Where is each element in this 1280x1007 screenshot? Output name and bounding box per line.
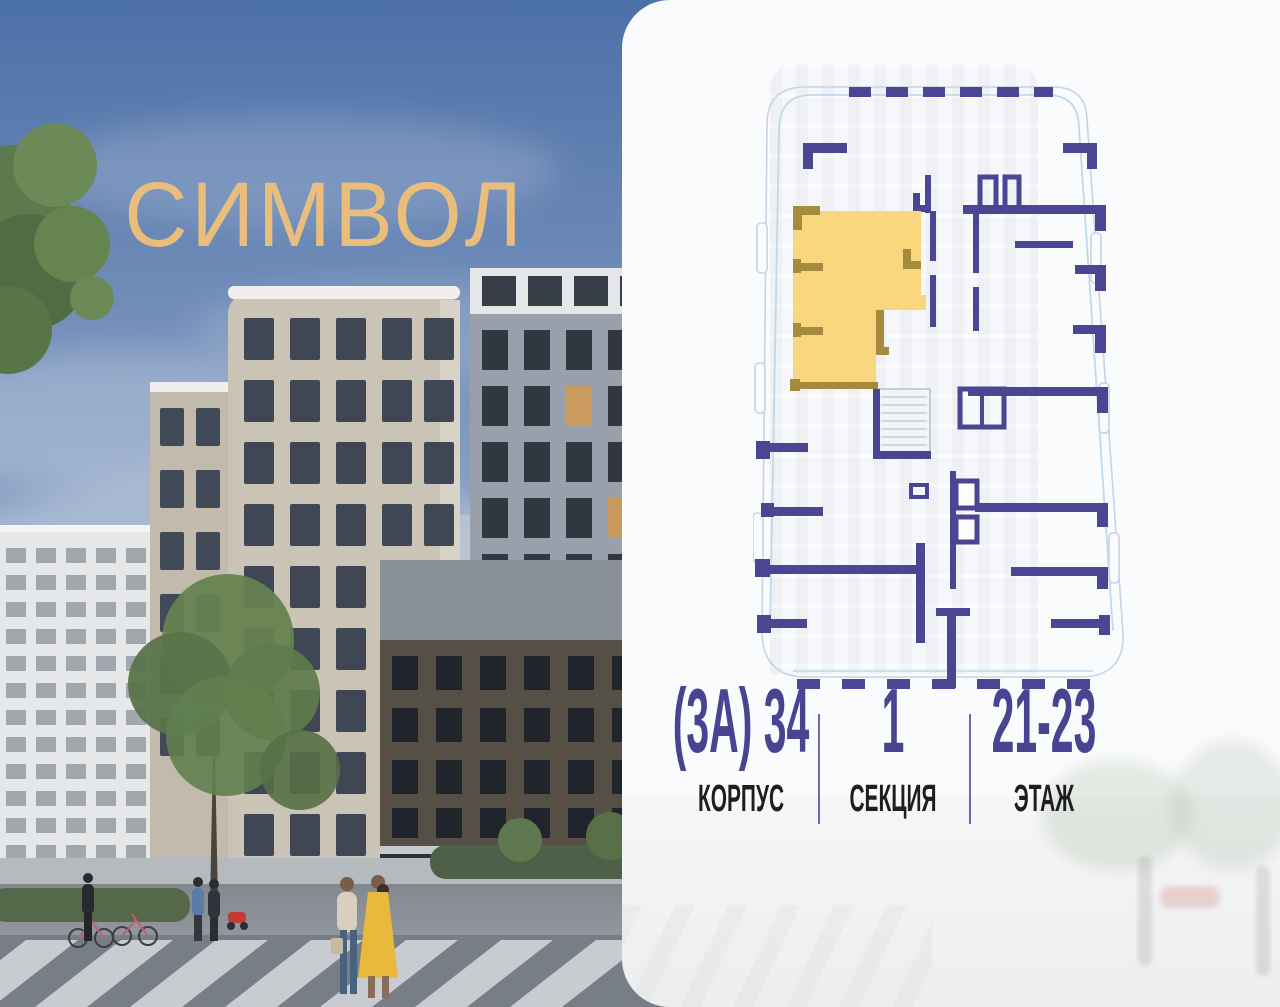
floor-plan — [753, 83, 1133, 703]
apartment-highlight[interactable] — [793, 211, 926, 388]
selected-apartment[interactable] — [790, 206, 926, 391]
brand-logo: СИМВОЛ — [16, 163, 634, 268]
faded-person — [1138, 856, 1152, 966]
faded-person — [1256, 866, 1270, 976]
apartment-card-panel: (3А) 34 КОРПУС 1 СЕКЦИЯ 21-23 ЭТАЖ — [622, 0, 1280, 1007]
real-estate-card: { "brand": { "logo_text": "СИМВОЛ", "log… — [0, 0, 1280, 1007]
staircase — [878, 389, 930, 453]
faded-red-car — [1160, 886, 1220, 908]
faded-crosswalk — [622, 905, 932, 1007]
street-photo — [0, 0, 700, 1007]
faded-tree — [1042, 760, 1192, 870]
plan-rooms — [911, 177, 1019, 542]
faded-tree — [1172, 740, 1280, 870]
